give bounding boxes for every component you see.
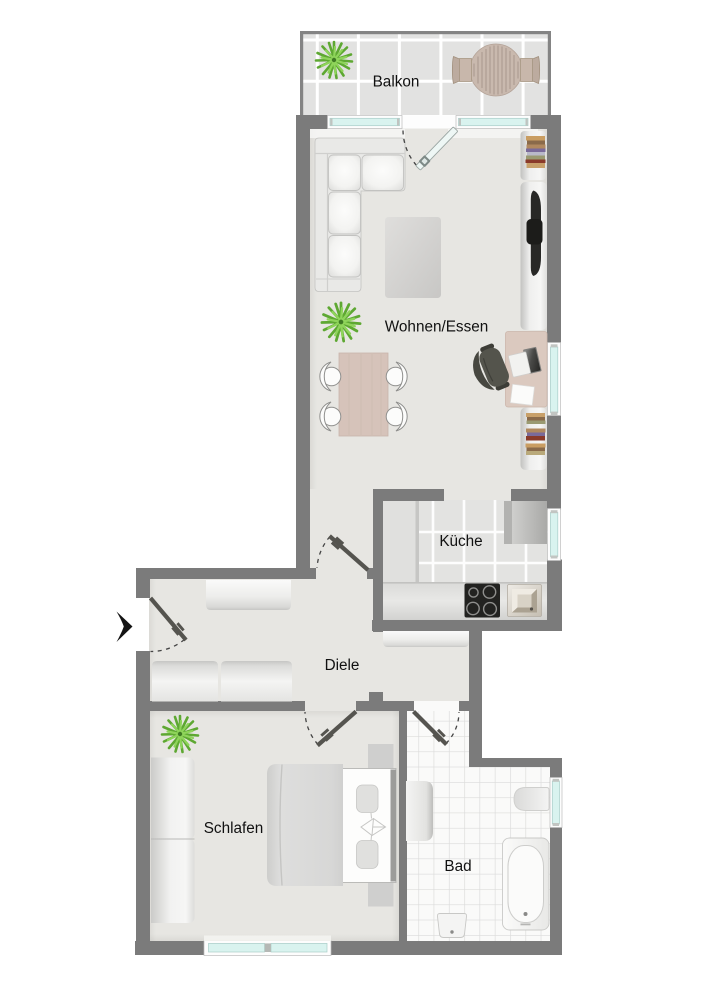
svg-text:Balkon: Balkon [373, 74, 420, 91]
svg-text:Schlafen: Schlafen [204, 820, 264, 837]
svg-text:Bad: Bad [444, 858, 471, 875]
svg-text:Diele: Diele [325, 657, 360, 674]
svg-text:Wohnen/Essen: Wohnen/Essen [385, 319, 488, 336]
svg-text:Küche: Küche [439, 533, 482, 550]
